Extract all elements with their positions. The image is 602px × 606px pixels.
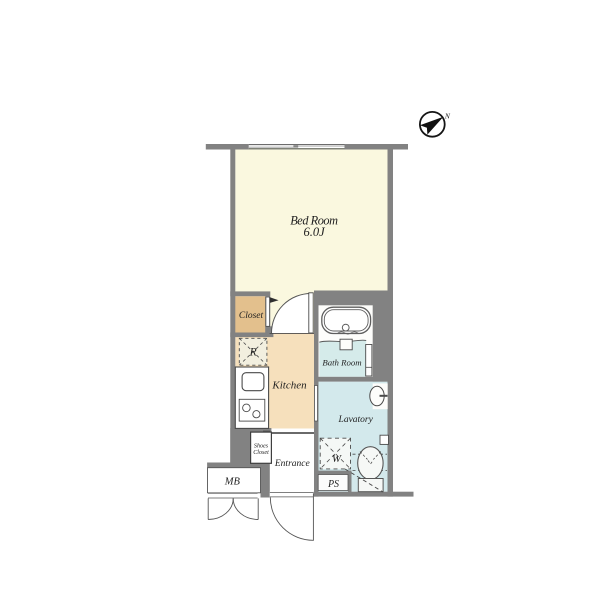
svg-text:Bath Room: Bath Room: [322, 357, 361, 367]
svg-text:Kitchen: Kitchen: [271, 380, 307, 392]
svg-text:MB: MB: [224, 476, 241, 487]
svg-text:W: W: [332, 453, 342, 465]
svg-text:Closet: Closet: [239, 311, 264, 321]
svg-text:N: N: [444, 112, 451, 121]
svg-text:Entrance: Entrance: [274, 459, 310, 469]
svg-text:6.0J: 6.0J: [304, 225, 327, 239]
svg-text:R: R: [249, 347, 257, 359]
svg-text:Lavatory: Lavatory: [338, 415, 374, 425]
svg-text:PS: PS: [327, 479, 339, 490]
svg-text:Closet: Closet: [253, 450, 269, 456]
svg-text:Shoes: Shoes: [254, 444, 269, 450]
